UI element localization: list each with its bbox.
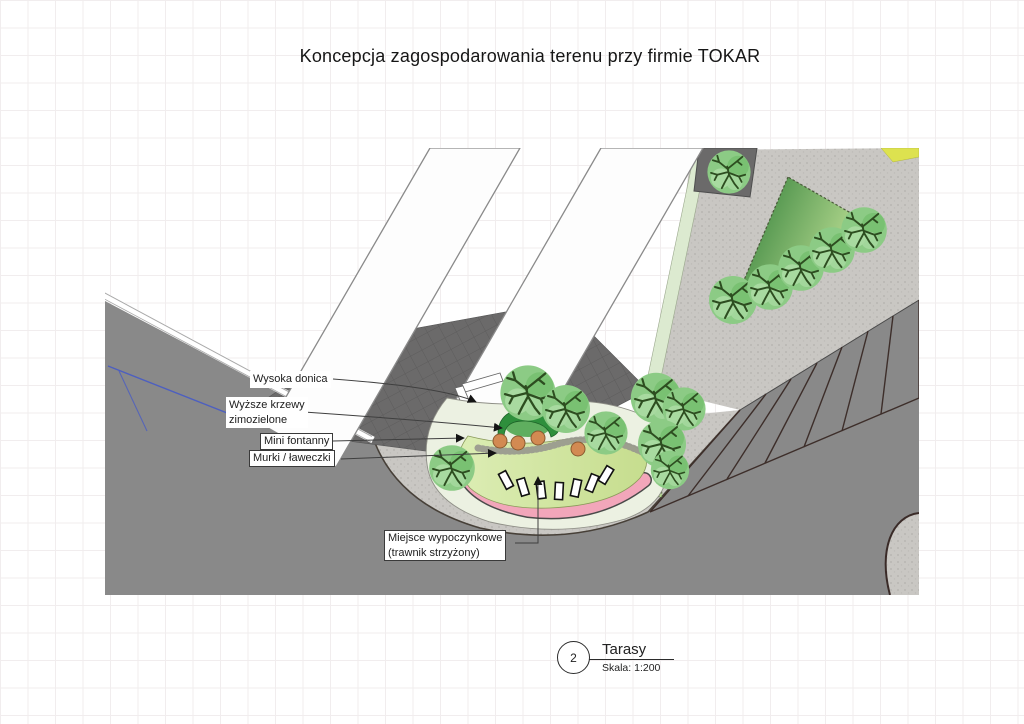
label-wyzsze-krzewy: Wyższe krzewy zimozielone	[226, 397, 308, 428]
label-mini-fontanny: Mini fontanny	[260, 433, 333, 450]
label-text: Wyższe krzewy	[229, 399, 305, 411]
site-plan-drawing	[0, 0, 1024, 724]
label-text: Mini fontanny	[264, 435, 329, 447]
label-murki-laweczki: Murki / ławeczki	[249, 450, 335, 467]
label-text: Wysoka donica	[253, 373, 328, 385]
tree-symbol	[584, 411, 627, 454]
sheet-name: Tarasy	[602, 641, 646, 658]
tree-symbol	[429, 445, 475, 491]
sheet-number: 2	[570, 651, 577, 665]
tree-symbol	[542, 385, 590, 433]
sheet-scale: Skala: 1:200	[602, 662, 660, 674]
label-text: Murki / ławeczki	[253, 452, 331, 464]
tree-symbol	[841, 207, 887, 253]
label-text: zimozielone	[229, 414, 287, 426]
label-miejsce-wypoczynkowe: Miejsce wypoczynkowe (trawnik strzyżony)	[384, 530, 506, 561]
label-text: Miejsce wypoczynkowe	[388, 532, 502, 544]
label-text: (trawnik strzyżony)	[388, 547, 480, 559]
sheet-number-circle: 2	[557, 641, 590, 674]
page-title: Koncepcja zagospodarowania terenu przy f…	[110, 46, 950, 67]
tree-symbol	[651, 451, 689, 489]
concept-plan-page: Koncepcja zagospodarowania terenu przy f…	[0, 0, 1024, 724]
tree-symbol	[707, 150, 750, 193]
label-wysoka-donica: Wysoka donica	[250, 371, 331, 388]
title-block-divider	[589, 659, 674, 660]
